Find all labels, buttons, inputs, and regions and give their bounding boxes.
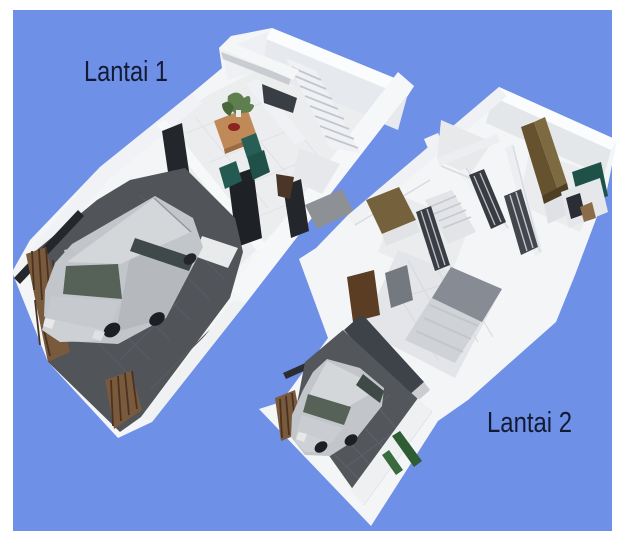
svg-text:Lantai 1: Lantai 1 bbox=[84, 56, 168, 88]
svg-text:Lantai 2: Lantai 2 bbox=[487, 407, 572, 439]
